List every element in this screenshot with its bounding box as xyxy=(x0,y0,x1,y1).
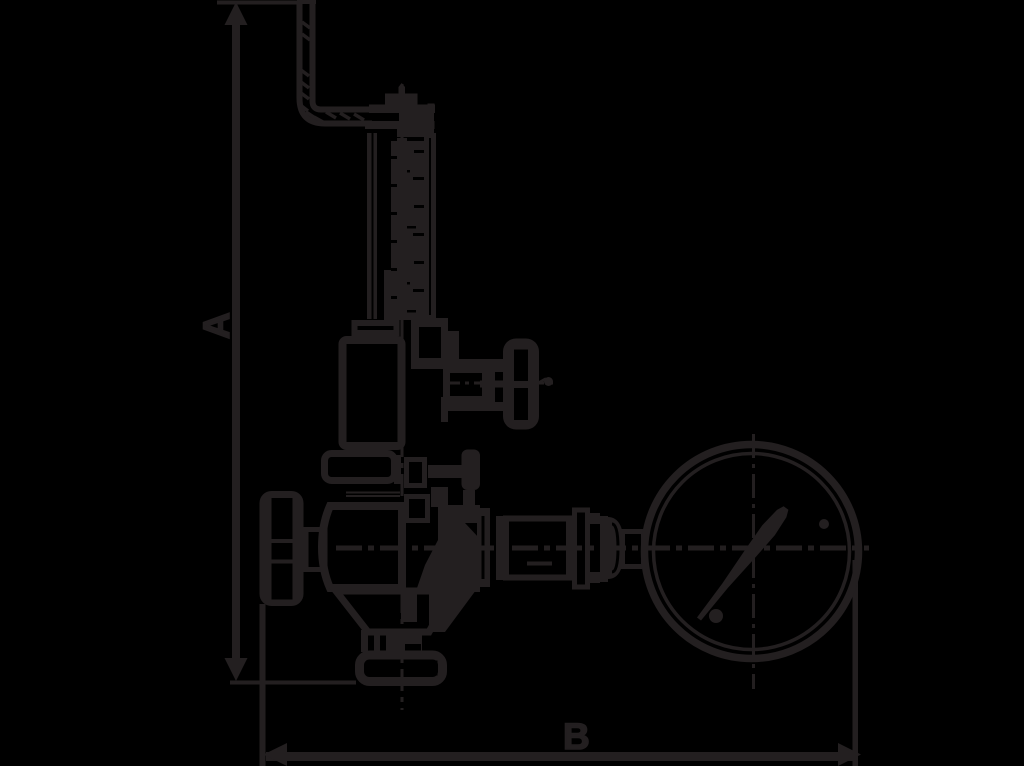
svg-text:A: A xyxy=(196,312,237,339)
svg-text:B: B xyxy=(563,716,590,757)
